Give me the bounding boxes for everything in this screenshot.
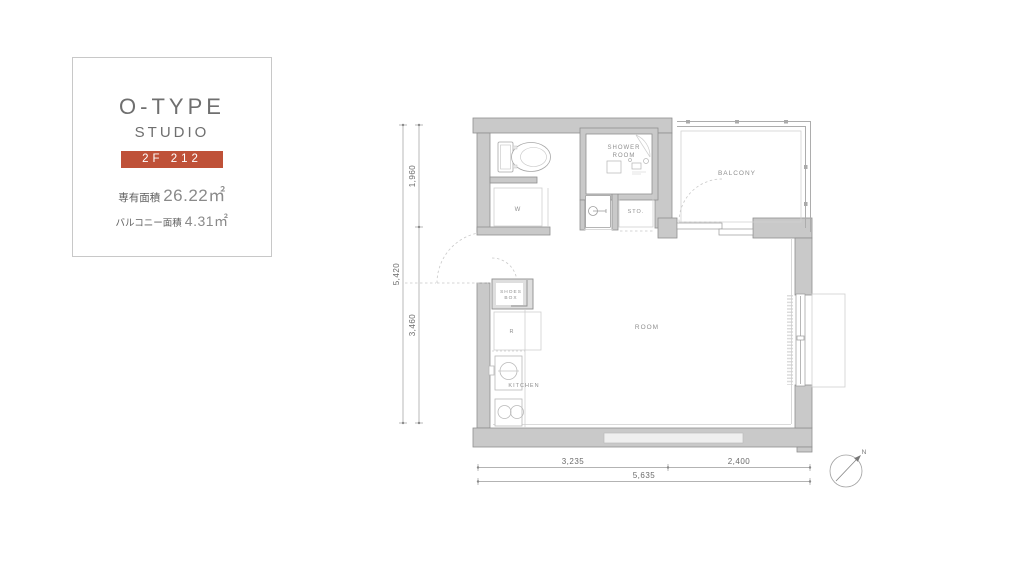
dim-left-lower: 3,460 xyxy=(408,314,417,337)
wall-niche-left xyxy=(580,200,585,230)
dim-bottom-total: 5,635 xyxy=(633,471,656,480)
dim-bottom-right: 2,400 xyxy=(728,457,751,466)
refrigerator-label: R xyxy=(510,329,515,335)
wall-niche-right xyxy=(612,193,618,230)
railing-posts xyxy=(686,120,808,206)
bottom-wall-window-strip xyxy=(604,433,743,443)
wall-washer-south xyxy=(477,227,550,235)
balcony-sliding-window xyxy=(677,223,753,235)
shower-room-label-line1: SHOWER xyxy=(608,145,641,151)
wall-right-lower xyxy=(795,385,812,428)
entrance-door-swing xyxy=(437,232,488,283)
wall-bottom-step xyxy=(797,447,812,452)
wall-left-upper xyxy=(477,133,490,232)
storage-label: STO. xyxy=(628,209,645,215)
toilet-fixture xyxy=(498,142,551,172)
wall-right-corner xyxy=(753,218,812,238)
shower-room-label-line2: ROOM xyxy=(613,153,636,159)
shoes-box-label-line1: SHOES xyxy=(500,289,522,295)
shoes-box-label-line2: BOX xyxy=(504,295,517,301)
wall-window-pier xyxy=(658,218,677,238)
kitchen-label: KITCHEN xyxy=(508,383,539,389)
washer-label: W xyxy=(515,207,522,213)
north-compass: N xyxy=(830,449,867,487)
refrigerator-space xyxy=(494,312,541,350)
dim-left-upper: 1,960 xyxy=(408,165,417,188)
balcony-door-swing xyxy=(679,179,722,222)
interior-lines xyxy=(493,188,792,428)
dim-left-total: 5,420 xyxy=(392,263,401,286)
floor-plan: SHOWER ROOM STO. BALCONY ROOM KITCHEN SH… xyxy=(0,0,1020,580)
dim-bottom-left: 3,235 xyxy=(562,457,585,466)
washbasin-fixture xyxy=(586,196,611,228)
balcony-label: BALCONY xyxy=(718,170,756,177)
room-label: ROOM xyxy=(635,324,659,331)
right-wall-window xyxy=(790,294,805,386)
compass-north-label: N xyxy=(862,449,867,456)
wall-right-upper xyxy=(795,238,812,295)
wall-left-lower xyxy=(477,283,490,428)
wall-wc-partition xyxy=(490,177,537,183)
exterior-platform xyxy=(812,294,845,387)
